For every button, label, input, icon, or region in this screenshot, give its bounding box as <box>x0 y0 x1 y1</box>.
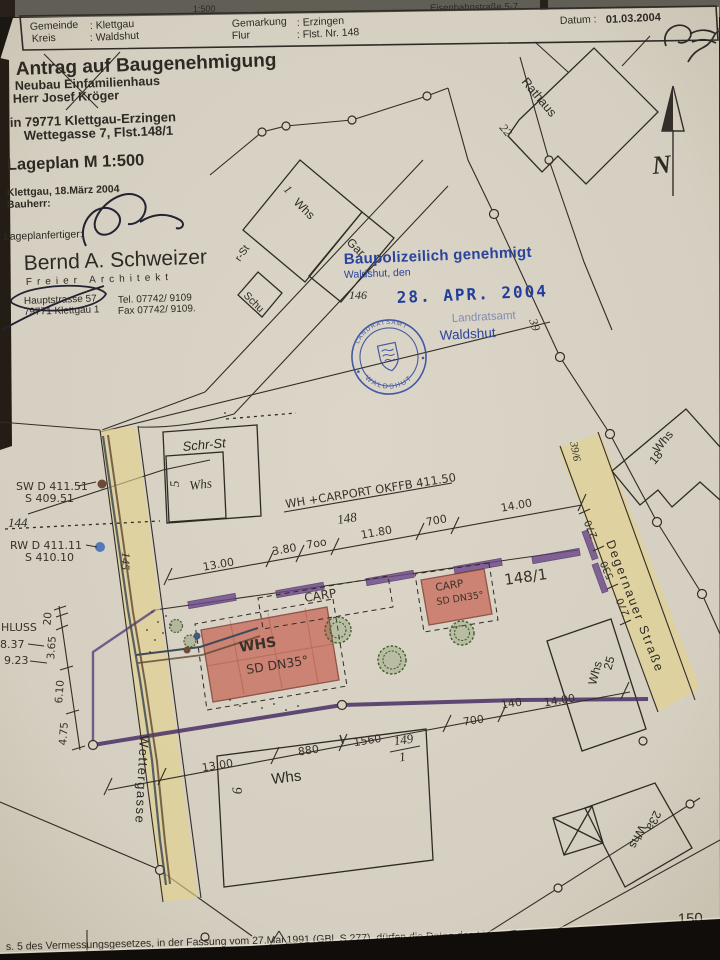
sw-manhole-dot <box>98 480 107 489</box>
parcel-146-label: 146 <box>349 288 367 302</box>
kreis-label: Kreis <box>32 32 56 45</box>
anschluss-value2: 9.23 <box>4 654 29 667</box>
building6-type: Whs <box>270 767 302 788</box>
site-plan-scan: 1:500 Eisenbahnstraße 5-7 <box>0 0 720 960</box>
flur-label: Flur <box>232 29 251 42</box>
anschluss-value1: 8.37 <box>0 638 25 651</box>
gemarkung-label: Gemarkung <box>232 16 288 30</box>
dim-left-1: 3.65 <box>45 636 59 660</box>
parcel-148-label: 148 <box>336 509 358 527</box>
dim-left-2: 6.10 <box>53 680 67 704</box>
stamp-office-bottom: Waldshut <box>439 325 496 343</box>
rw-elevation-line2: S 410.10 <box>25 551 74 564</box>
kreis-value: : Waldshut <box>90 30 140 44</box>
building5-number: 5 <box>167 480 182 488</box>
parcel-144-label: 144 <box>8 515 28 530</box>
stamp-line2: Waldshut, den <box>344 266 411 281</box>
gemeinde-label: Gemeinde <box>30 19 79 33</box>
bauherr-label: Bauherr: <box>7 197 51 211</box>
building5-type: Whs <box>189 475 213 493</box>
datum-value: 01.03.2004 <box>606 11 662 26</box>
parcel-149-numerator: 149 <box>393 731 415 749</box>
sw-elevation-line2: S 409.51 <box>25 492 74 505</box>
dim-left-3: 4.75 <box>57 722 71 746</box>
dim-left-0: 20 <box>42 612 55 626</box>
scanned-site-plan-photo: 1:500 Eisenbahnstraße 5-7 <box>0 0 720 960</box>
north-letter: N <box>650 149 673 180</box>
parcel-145-label: 145 <box>118 552 133 570</box>
anschluss-label: HLUSS <box>1 621 37 634</box>
top-strip-shadow-left <box>0 0 15 17</box>
building6-number: 6 <box>231 787 246 795</box>
datum-label: Datum : <box>560 13 597 27</box>
